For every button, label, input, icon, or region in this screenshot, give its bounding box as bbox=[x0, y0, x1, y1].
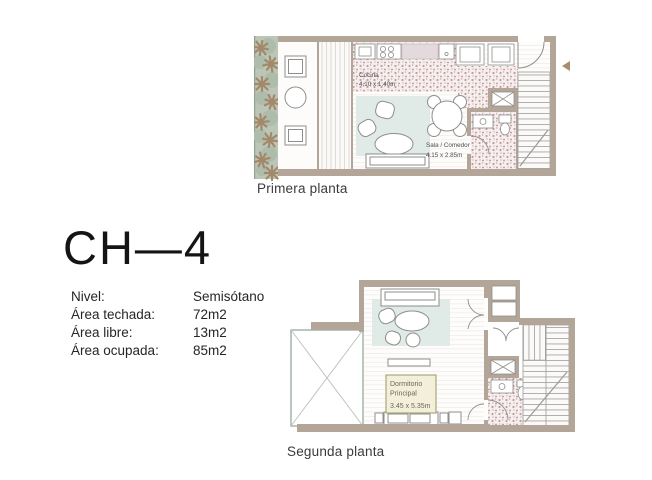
room-label-dormitorio-line2: Principal bbox=[390, 391, 417, 398]
unit-title: CH—4 bbox=[63, 220, 212, 275]
bathroom-area bbox=[467, 108, 520, 169]
room-label-cocina: Cocina bbox=[359, 72, 379, 79]
info-label: Área techada: bbox=[71, 306, 193, 324]
plan-caption-segunda: Segunda planta bbox=[287, 444, 384, 459]
nightstand-icon bbox=[375, 413, 383, 423]
floorplan-primera: Cocina 4.10 x 1.40m Sala / Comedor 4.15 … bbox=[254, 36, 574, 181]
closet-area bbox=[488, 280, 520, 322]
garden-area bbox=[254, 36, 281, 180]
appliance-icon bbox=[439, 44, 454, 59]
info-value: 13m2 bbox=[193, 324, 227, 342]
wardrobe-doors bbox=[493, 328, 519, 341]
floorplan-segunda: Dormitorio Principal 3.45 x 5.35m bbox=[281, 272, 581, 444]
info-row-area-techada: Área techada: 72m2 bbox=[71, 306, 264, 324]
coffee-table-icon bbox=[375, 134, 413, 155]
floorplan-segunda-drawing: Dormitorio Principal 3.45 x 5.35m bbox=[281, 272, 581, 444]
deck-area bbox=[317, 42, 353, 169]
info-label: Nivel: bbox=[71, 288, 193, 306]
cabinet-icon bbox=[449, 412, 461, 424]
terrace-area bbox=[278, 42, 317, 169]
outdoor-round-table-icon bbox=[285, 87, 306, 108]
bath-sink-icon bbox=[473, 115, 493, 128]
dining-table-icon bbox=[432, 101, 462, 131]
bench-icon bbox=[388, 359, 430, 366]
room-dim-sala: 4.15 x 2.85m bbox=[426, 152, 462, 159]
info-row-nivel: Nivel: Semisótano bbox=[71, 288, 264, 306]
stairs-icon bbox=[518, 72, 550, 169]
counter bbox=[402, 44, 438, 59]
entrance-arrow-icon bbox=[562, 61, 570, 71]
toilet-icon bbox=[499, 115, 511, 123]
nightstand-icon bbox=[440, 413, 448, 423]
info-value: 85m2 bbox=[193, 342, 227, 360]
unit-info: Nivel: Semisótano Área techada: 72m2 Áre… bbox=[71, 288, 264, 360]
room-label-sala: Sala / Comedor bbox=[426, 142, 470, 149]
info-value: 72m2 bbox=[193, 306, 227, 324]
plan-caption-primera: Primera planta bbox=[257, 181, 348, 196]
door-arc-icon bbox=[493, 328, 519, 341]
room-label-box: Dormitorio Principal 3.45 x 5.35m bbox=[386, 375, 436, 413]
info-label: Área ocupada: bbox=[71, 342, 193, 360]
room-label-dormitorio-line1: Dormitorio bbox=[390, 381, 422, 388]
bath-sink-icon bbox=[491, 380, 513, 393]
room-dim-cocina: 4.10 x 1.40m bbox=[359, 81, 395, 88]
stairs-icon bbox=[523, 325, 569, 426]
room-dim-dormitorio: 3.45 x 5.35m bbox=[390, 403, 431, 410]
info-row-area-libre: Área libre: 13m2 bbox=[71, 324, 264, 342]
info-label: Área libre: bbox=[71, 324, 193, 342]
info-row-area-ocupada: Área ocupada: 85m2 bbox=[71, 342, 264, 360]
table-icon bbox=[395, 311, 429, 331]
floorplan-primera-drawing: Cocina 4.10 x 1.40m Sala / Comedor 4.15 … bbox=[254, 36, 574, 181]
info-value: Semisótano bbox=[193, 288, 264, 306]
entry-opening bbox=[518, 36, 544, 42]
shaft-x-icon bbox=[488, 88, 518, 110]
shaft-x-icon bbox=[487, 356, 519, 378]
chair-icon bbox=[406, 333, 420, 347]
